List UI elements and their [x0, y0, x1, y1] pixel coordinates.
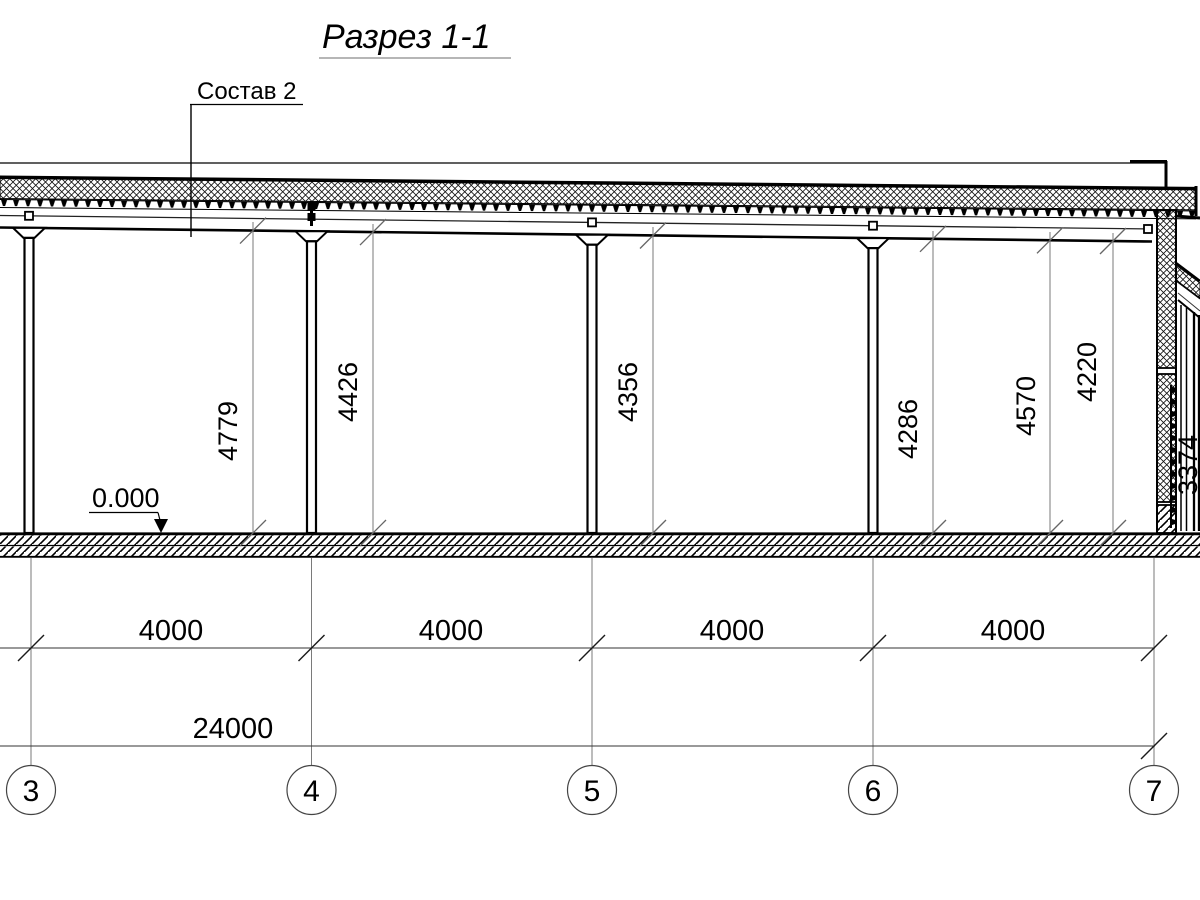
floor-hatch-row1: [0, 536, 1200, 546]
beam-node-axis5: [588, 218, 596, 226]
lower-roof-insulation: [1176, 265, 1200, 298]
bottom-dimensions: 4000 4000 4000 4000 24000 3 4 5 6 7: [0, 558, 1179, 815]
floor-hatch-row2: [0, 547, 1200, 557]
section-drawing: Состав 2 0.000 4779 4426 4356 4286: [0, 0, 1200, 900]
beam-node-axis3: [25, 212, 33, 220]
composition-label: Состав 2: [197, 78, 297, 105]
height-dim-value-4: 4286: [893, 399, 923, 459]
axis-bubble-6: 6: [849, 766, 898, 815]
height-dim-value-2: 4426: [333, 362, 363, 422]
column-axis4: [296, 231, 328, 533]
axis-label-6: 6: [865, 775, 882, 808]
elevation-mark: 0.000: [89, 483, 168, 533]
axis-bubble-7: 7: [1130, 766, 1179, 815]
roof-beam-top-line: [0, 216, 1152, 230]
column-axis6: [857, 238, 889, 533]
height-dim-value-partial: 3374: [1173, 435, 1200, 495]
height-dim-value-3: 4356: [613, 362, 643, 422]
column-axis5: [576, 235, 608, 533]
bay-dim-value-3: 4000: [700, 615, 765, 647]
axis-bubble-4: 4: [287, 766, 336, 815]
axis-label-5: 5: [584, 775, 601, 808]
axis-bubble-3: 3: [7, 766, 56, 815]
bay-dim-value-4: 4000: [981, 615, 1046, 647]
bay-dim-value-2: 4000: [419, 615, 484, 647]
page-title: Разрез 1-1: [322, 18, 490, 56]
wall-masonry-upper: [1157, 210, 1176, 368]
axis-label-7: 7: [1146, 775, 1163, 808]
axis-label-3: 3: [23, 775, 40, 808]
column-axis3: [13, 228, 45, 533]
roof-right-flashing: [1176, 216, 1200, 218]
beam-node-wall: [1144, 225, 1152, 233]
title-block: Разрез 1-1: [319, 18, 511, 58]
axis-label-4: 4: [303, 775, 320, 808]
drawing-canvas: Состав 2 0.000 4779 4426 4356 4286: [0, 0, 1200, 900]
height-dim-value-1: 4779: [213, 401, 243, 461]
beam-splice-marker-axis4: [308, 201, 316, 226]
height-dim-value-5: 4570: [1011, 376, 1041, 436]
roof-assembly: [0, 161, 1200, 242]
beam-node-axis6: [869, 222, 877, 230]
elevation-value: 0.000: [92, 483, 160, 513]
floor-slab: [0, 534, 1200, 557]
axis-bubble-5: 5: [568, 766, 617, 815]
elevation-arrow-head: [154, 519, 168, 533]
height-dim-value-6: 4220: [1072, 342, 1102, 402]
bay-dim-value-1: 4000: [139, 615, 204, 647]
composition-callout: Состав 2: [190, 78, 303, 237]
height-dimensions: 4779 4426 4356 4286 4570 4220 3374: [213, 218, 1200, 546]
total-dim-value: 24000: [193, 713, 274, 745]
